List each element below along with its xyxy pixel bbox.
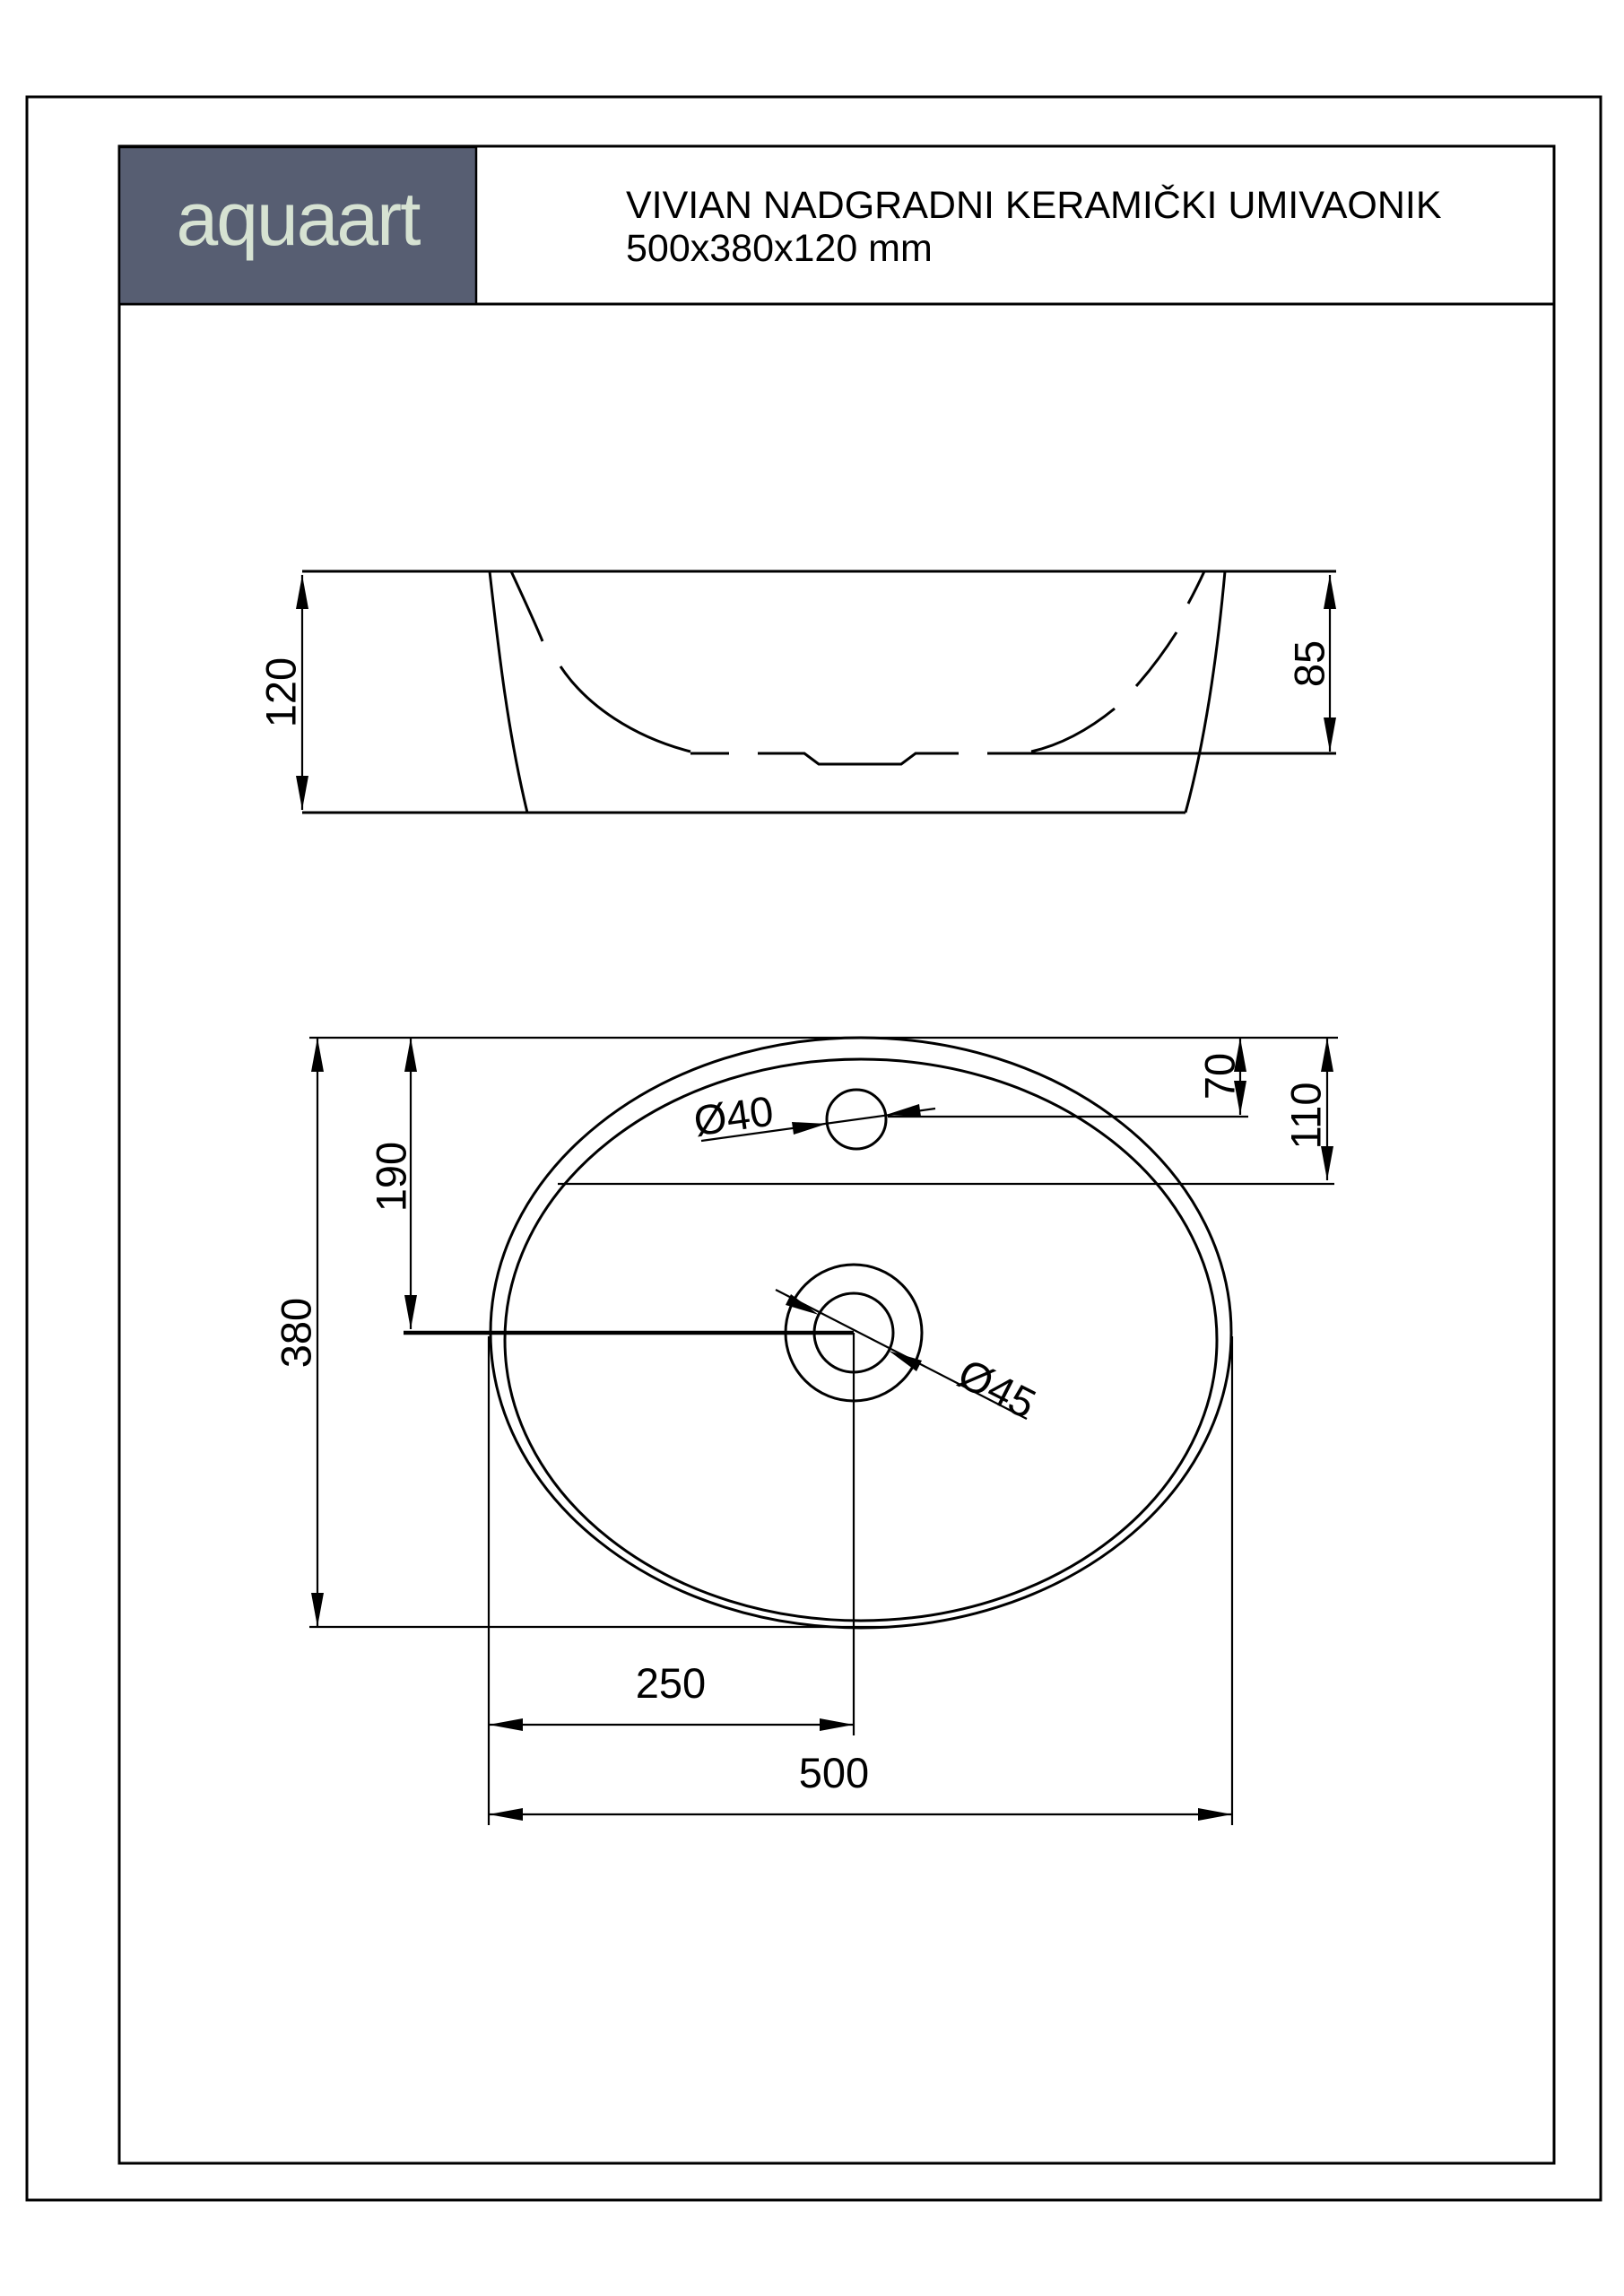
arrow-down-right-icon [786, 1294, 819, 1315]
side-left-inner-curve [560, 666, 690, 752]
drawing-subtitle: 500x380x120 mm [626, 227, 933, 270]
side-right-inner-curve [1136, 632, 1177, 686]
side-view: 120 85 [257, 571, 1337, 813]
arrow-up-icon [1321, 1038, 1333, 1072]
arrow-right-icon [820, 1718, 854, 1731]
arrow-down-icon [296, 776, 308, 810]
arrow-up-left-icon [889, 1351, 922, 1371]
dimension-label-110: 110 [1282, 1083, 1330, 1150]
drawing-sheet: aquaart VIVIAN NADGRADNI KERAMIČKI UMIVA… [0, 0, 1624, 2296]
arrow-up-icon [311, 1038, 324, 1072]
arrow-down-icon [1324, 717, 1336, 752]
arrow-right-icon [792, 1122, 827, 1135]
arrow-right-icon [1198, 1808, 1232, 1821]
side-left-inner-curve [511, 571, 543, 641]
outer-border [27, 97, 1601, 2200]
dimension-label-d45: Ø45 [951, 1349, 1043, 1428]
arrow-left-icon [886, 1104, 921, 1117]
basin-inner-ellipse [505, 1059, 1217, 1621]
arrow-down-icon [1321, 1146, 1333, 1180]
dimension-label-380: 380 [273, 1298, 320, 1368]
brand-logo: aquaart [177, 177, 421, 261]
arrow-up-icon [1324, 575, 1336, 609]
inner-frame [119, 146, 1554, 2163]
arrow-left-icon [489, 1718, 523, 1731]
arrow-up-icon [404, 1038, 417, 1072]
arrow-left-icon [489, 1808, 523, 1821]
arrow-down-icon [404, 1295, 417, 1329]
dimension-label-d40: Ø40 [690, 1087, 776, 1145]
side-interior-bottom-line [690, 753, 1336, 764]
dimension-label-70: 70 [1196, 1053, 1244, 1100]
side-right-inner-curve [1188, 571, 1204, 604]
dimension-label-120: 120 [257, 657, 305, 727]
side-right-inner-curve [1031, 709, 1115, 752]
side-right-wall [1185, 571, 1225, 813]
dimension-label-85: 85 [1286, 640, 1333, 687]
dimension-label-190: 190 [368, 1142, 415, 1212]
dimension-label-250: 250 [636, 1659, 706, 1707]
technical-drawing: aquaart VIVIAN NADGRADNI KERAMIČKI UMIVA… [0, 0, 1624, 2296]
arrow-down-icon [311, 1593, 324, 1627]
side-left-wall [490, 571, 527, 813]
plan-view: 380 190 70 110 Ø40 Ø45 250 [273, 1038, 1339, 1825]
drawing-title: VIVIAN NADGRADNI KERAMIČKI UMIVAONIK [626, 184, 1442, 227]
arrow-up-icon [296, 575, 308, 609]
dimension-label-500: 500 [799, 1749, 869, 1796]
